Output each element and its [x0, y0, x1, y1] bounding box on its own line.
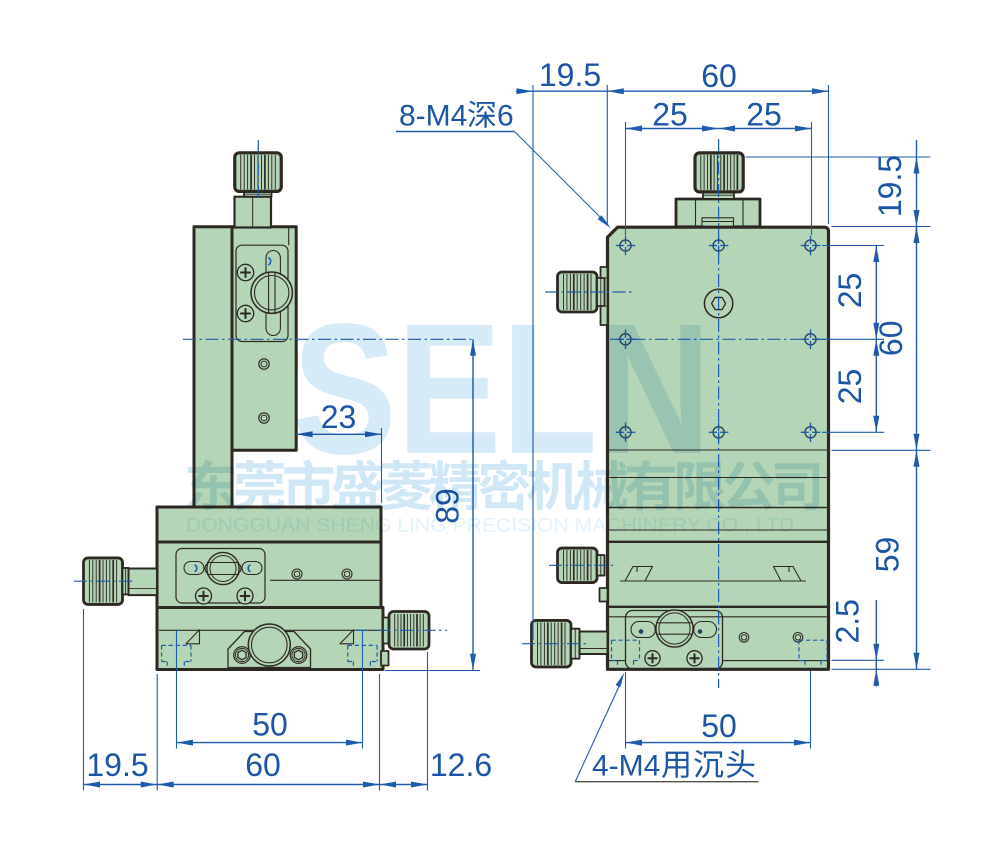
svg-text:DONGGUAN SHENG LING PRECISION: DONGGUAN SHENG LING PRECISION MACHINERY … — [186, 515, 800, 537]
